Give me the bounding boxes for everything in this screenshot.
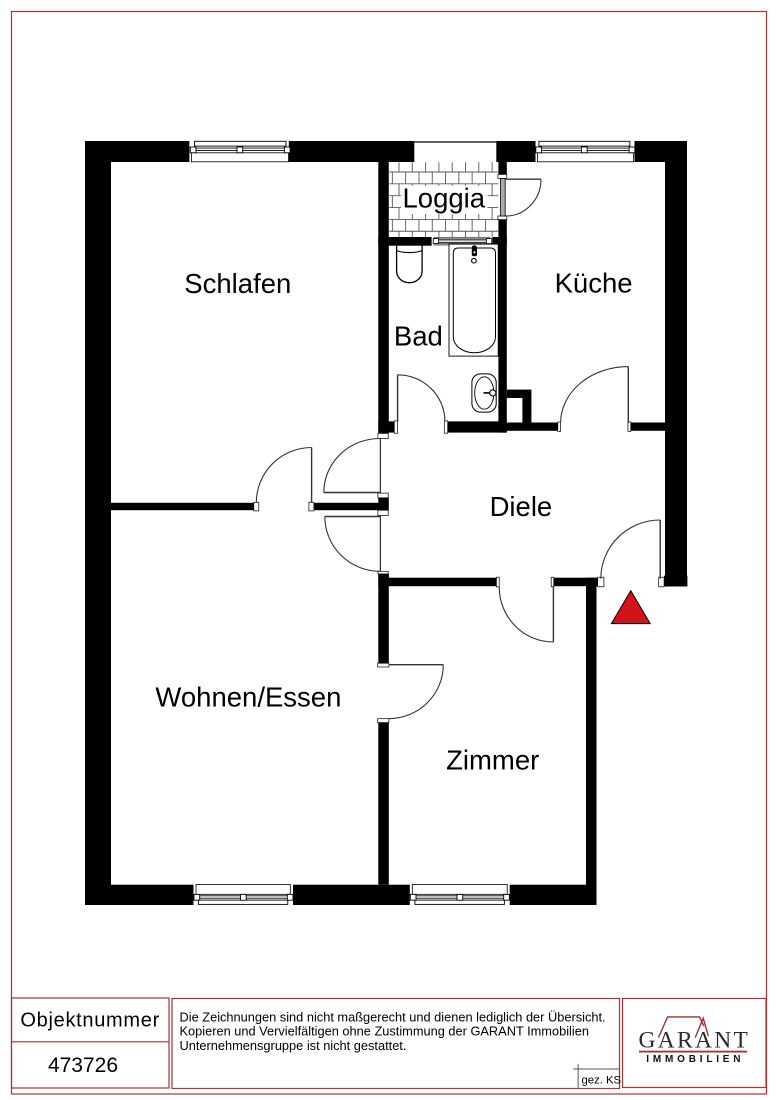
svg-text:473726: 473726 xyxy=(48,1054,118,1077)
svg-text:Diele: Diele xyxy=(490,491,553,522)
svg-text:Kopieren und Vervielfältigen o: Kopieren und Vervielfältigen ohne Zustim… xyxy=(180,1024,589,1039)
svg-text:Objektnummer: Objektnummer xyxy=(20,1009,160,1031)
svg-text:Schlafen: Schlafen xyxy=(184,268,291,299)
svg-text:Zimmer: Zimmer xyxy=(446,745,539,776)
svg-text:Loggia: Loggia xyxy=(403,182,486,213)
svg-text:GARANT: GARANT xyxy=(639,1028,751,1054)
svg-text:gez. KS: gez. KS xyxy=(582,1075,622,1087)
svg-text:Bad: Bad xyxy=(394,321,443,352)
svg-text:Unternehmensgruppe ist nicht g: Unternehmensgruppe ist nicht gestattet. xyxy=(180,1038,407,1053)
svg-text:Die Zeichnungen sind nicht maß: Die Zeichnungen sind nicht maßgerecht un… xyxy=(180,1009,606,1024)
svg-text:Wohnen/Essen: Wohnen/Essen xyxy=(155,682,341,713)
svg-text:IMMOBILIEN: IMMOBILIEN xyxy=(646,1054,744,1065)
svg-text:Küche: Küche xyxy=(555,267,633,298)
